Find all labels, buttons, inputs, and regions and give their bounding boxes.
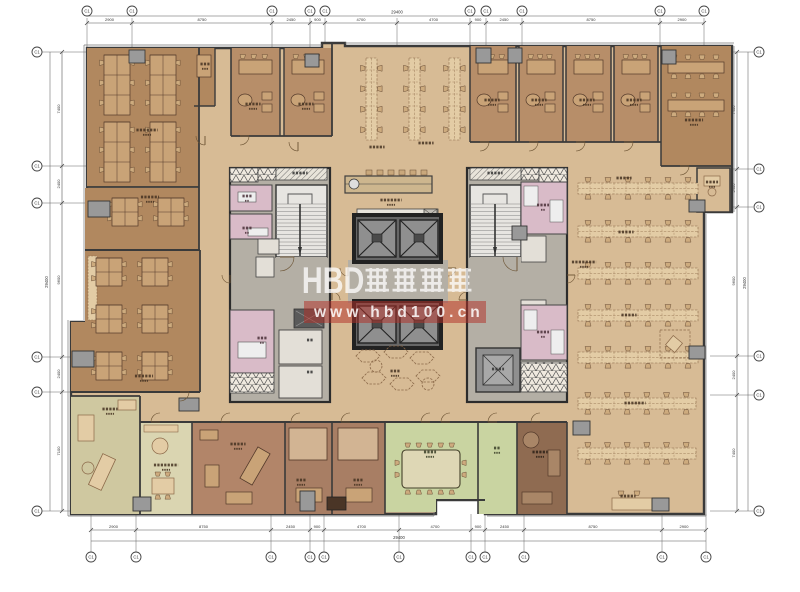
svg-text:2450: 2450: [287, 17, 297, 22]
svg-text:C1: C1: [659, 555, 665, 560]
svg-text:C1: C1: [756, 167, 762, 172]
svg-text:2450: 2450: [286, 524, 296, 529]
svg-text:C1: C1: [133, 555, 139, 560]
svg-text:4700: 4700: [429, 17, 439, 22]
svg-text:4700: 4700: [357, 17, 367, 22]
svg-text:900: 900: [314, 17, 321, 22]
svg-text:2400: 2400: [731, 370, 736, 380]
svg-text:C1: C1: [519, 9, 525, 14]
svg-text:C1: C1: [467, 9, 473, 14]
svg-text:29400: 29400: [391, 10, 403, 15]
svg-text:C1: C1: [84, 9, 90, 14]
svg-text:8750: 8750: [587, 17, 597, 22]
svg-text:7100: 7100: [56, 446, 61, 456]
svg-text:2400: 2400: [56, 179, 61, 189]
svg-text:C1: C1: [34, 355, 40, 360]
svg-text:C1: C1: [468, 555, 474, 560]
svg-text:C1: C1: [482, 555, 488, 560]
svg-text:C1: C1: [756, 509, 762, 514]
svg-text:C1: C1: [307, 555, 313, 560]
svg-text:C1: C1: [34, 201, 40, 206]
svg-text:2400: 2400: [56, 369, 61, 379]
svg-text:C1: C1: [756, 50, 762, 55]
svg-text:900: 900: [314, 524, 321, 529]
svg-text:C1: C1: [88, 555, 94, 560]
svg-text:C1: C1: [269, 9, 275, 14]
svg-text:9600: 9600: [731, 276, 736, 286]
svg-text:C1: C1: [322, 9, 328, 14]
svg-text:C1: C1: [34, 164, 40, 169]
svg-text:2900: 2900: [109, 524, 119, 529]
svg-text:9600: 9600: [56, 275, 61, 285]
svg-text:C1: C1: [321, 555, 327, 560]
svg-text:4700: 4700: [431, 524, 441, 529]
svg-text:2450: 2450: [500, 17, 510, 22]
svg-text:900: 900: [475, 17, 482, 22]
svg-text:C1: C1: [307, 9, 313, 14]
svg-text:2900: 2900: [105, 17, 115, 22]
svg-text:C1: C1: [657, 9, 663, 14]
svg-text:C1: C1: [34, 390, 40, 395]
svg-text:C1: C1: [756, 354, 762, 359]
svg-text:29400: 29400: [393, 535, 405, 540]
svg-text:8750: 8750: [199, 524, 209, 529]
svg-text:C1: C1: [396, 555, 402, 560]
svg-text:C1: C1: [34, 509, 40, 514]
svg-text:8750: 8750: [198, 17, 208, 22]
svg-text:C1: C1: [268, 555, 274, 560]
svg-text:8750: 8750: [589, 524, 599, 529]
svg-text:2900: 2900: [680, 524, 690, 529]
svg-text:C1: C1: [756, 393, 762, 398]
svg-text:HBD: HBD: [302, 261, 365, 302]
svg-text:C1: C1: [701, 9, 707, 14]
svg-text:C1: C1: [129, 9, 135, 14]
svg-text:C1: C1: [521, 555, 527, 560]
svg-text:C1: C1: [34, 50, 40, 55]
svg-text:C1: C1: [483, 9, 489, 14]
svg-text:2900: 2900: [678, 17, 688, 22]
svg-text:4700: 4700: [357, 524, 367, 529]
svg-text:7400: 7400: [56, 104, 61, 114]
svg-text:2450: 2450: [500, 524, 510, 529]
svg-text:29400: 29400: [742, 277, 747, 289]
svg-text:www.hbd100.cn: www.hbd100.cn: [313, 304, 484, 321]
svg-text:900: 900: [475, 524, 482, 529]
svg-text:C1: C1: [703, 555, 709, 560]
svg-text:29400: 29400: [44, 276, 49, 288]
svg-text:C1: C1: [756, 205, 762, 210]
svg-text:7400: 7400: [731, 448, 736, 458]
